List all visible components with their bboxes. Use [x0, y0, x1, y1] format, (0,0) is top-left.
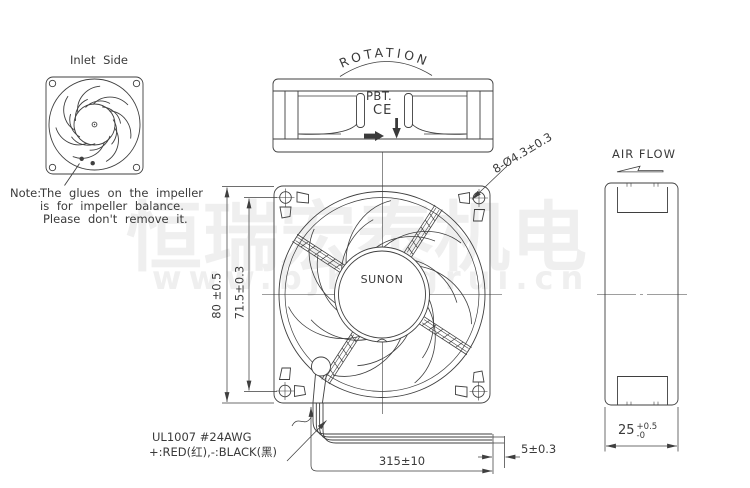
note-line-3: Please don't remove it. [43, 213, 188, 226]
airflow-arrow [617, 166, 663, 172]
motor-hub [335, 247, 430, 342]
inlet-side-title: Inlet Side [57, 54, 141, 67]
fan-drawing-lineart: ROTATION [0, 0, 750, 488]
ce-mark: CE [373, 104, 392, 119]
brand-label: SUNON [357, 274, 407, 287]
glue-dot [80, 157, 84, 161]
inlet-side-view [46, 77, 143, 186]
dim-depth-value: 25 [618, 424, 635, 439]
glue-dot [91, 161, 95, 165]
airflow-direction-arrow-down [392, 118, 400, 139]
lead-wire-leader [287, 421, 327, 462]
lead-spec-line-1: UL1007 #24AWG [152, 431, 252, 444]
note-leader-line [65, 164, 80, 186]
dim-hole-pitch: 71.5±0.3 [233, 253, 246, 333]
wire-break-mark [292, 417, 312, 427]
rotation-direction-arrow [364, 131, 384, 141]
rotation-title: ROTATION [337, 45, 432, 71]
material-label: PBT. [366, 90, 392, 103]
dim-depth: 25 +0.5 -0 [618, 423, 657, 440]
airflow-label: AIR FLOW [607, 148, 681, 161]
lead-spec-line-2: +:RED(红),-:BLACK(黑) [149, 446, 277, 459]
svg-text:ROTATION: ROTATION [337, 45, 432, 71]
note-label: Note: [10, 187, 41, 200]
dim-depth-tol-minus: -0 [637, 432, 658, 441]
dim-lead-length: 315±10 [371, 455, 433, 468]
dim-frame-height: 80 ±0.5 [210, 256, 223, 336]
side-view [597, 166, 687, 405]
fan-technical-drawing-page: 恒瑞宏泰机电 www.bjhengrui.cn [0, 0, 750, 488]
wire-stripped-ends [492, 437, 504, 443]
wire-grommet [312, 357, 331, 376]
dim-strip-length: 5±0.3 [521, 443, 556, 456]
